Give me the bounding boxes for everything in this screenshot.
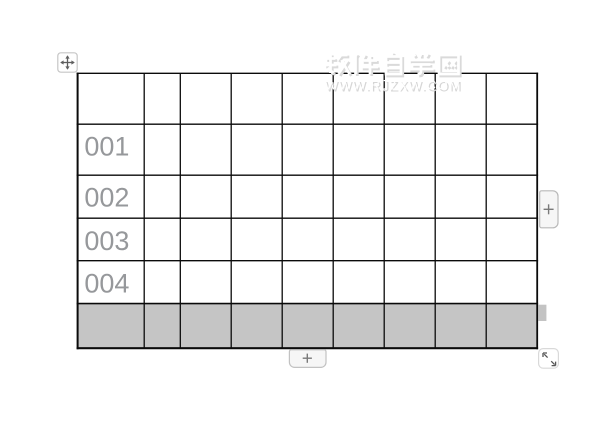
svg-text:003: 003 — [84, 226, 129, 256]
svg-text:004: 004 — [84, 269, 129, 299]
svg-text:WWW.RJZXW.COM: WWW.RJZXW.COM — [325, 77, 462, 92]
svg-text:002: 002 — [84, 183, 129, 213]
svg-text:001: 001 — [84, 132, 129, 162]
